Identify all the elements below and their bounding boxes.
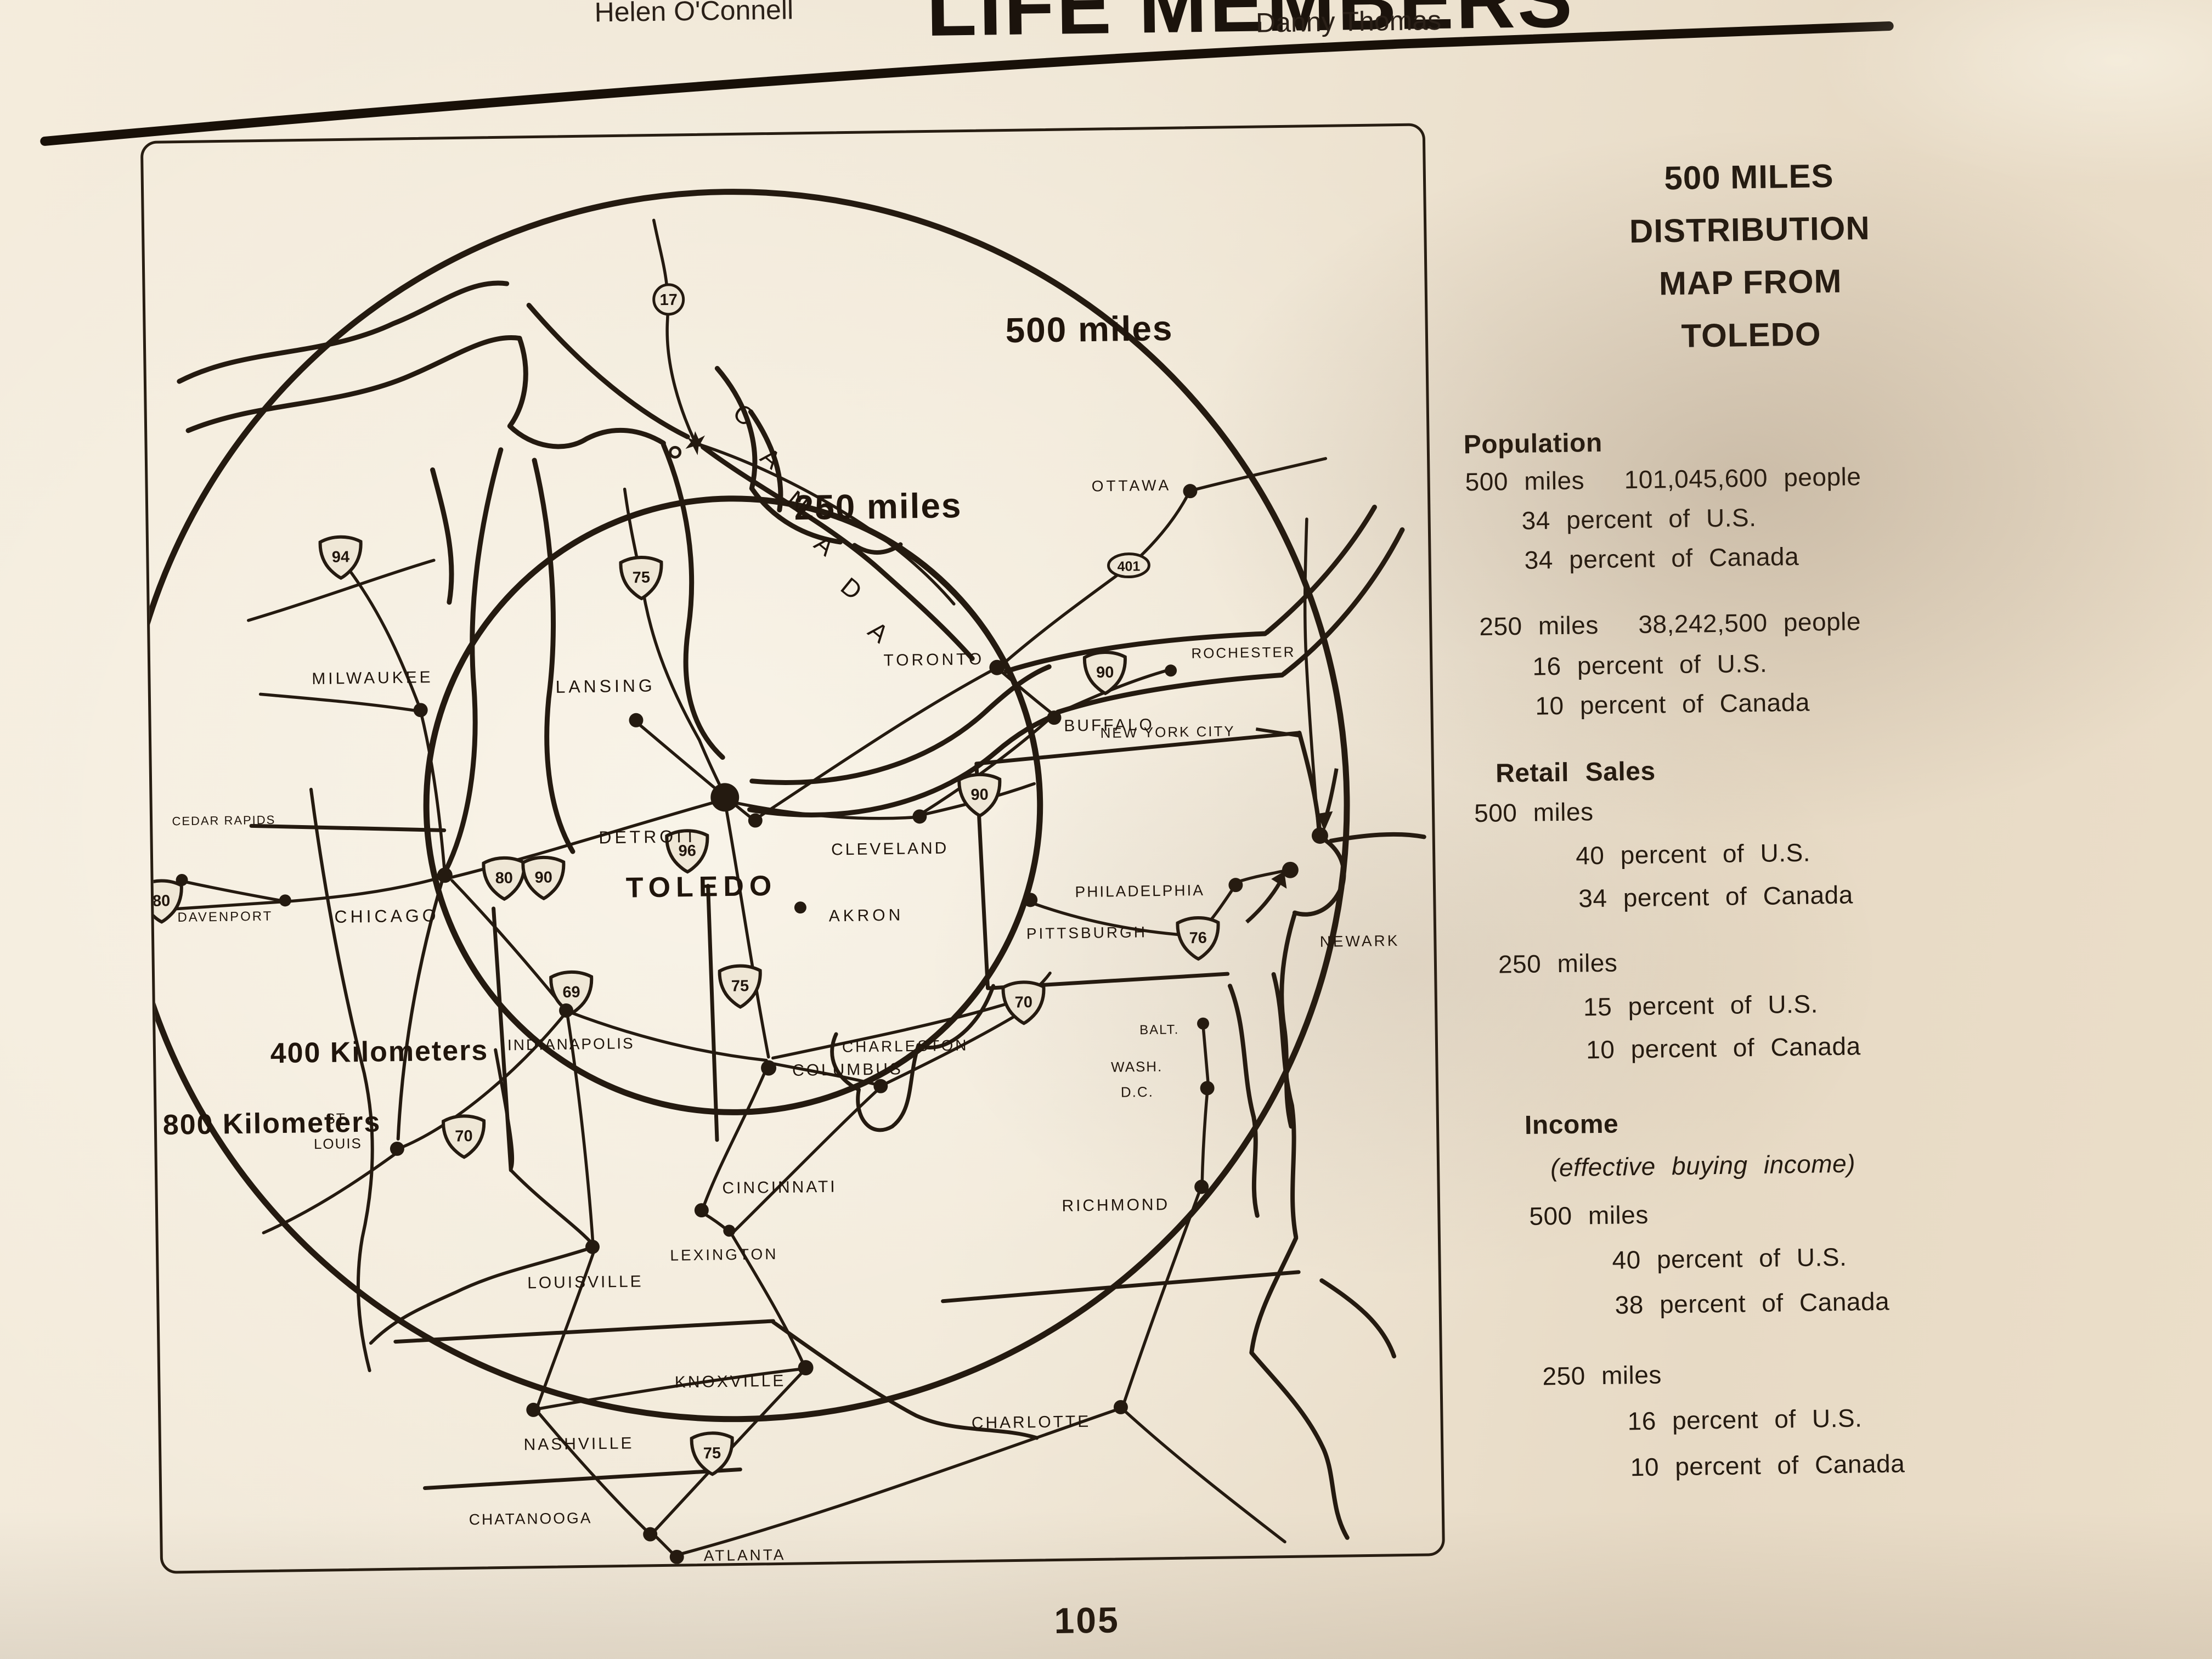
sidebar-title-line-1: 500 MILES (1601, 156, 1898, 198)
shield-number: 70 (1015, 994, 1033, 1011)
sidebar-title-line-2: DISTRIBUTION (1601, 208, 1898, 251)
credit-helen-oconnell: Helen O'Connell (594, 0, 793, 28)
city-label-atlanta: ATLANTA (703, 1546, 786, 1564)
city-label-cedar-rapids: CEDAR RAPIDS (172, 813, 275, 828)
shield-number: 75 (703, 1444, 721, 1462)
city-label-newark: NEWARK (1320, 932, 1400, 950)
highway-shield-75: 75 (620, 557, 662, 599)
population-heading: Population (1463, 428, 1602, 460)
scale-label-800-kilometers: 800 Kilometers (162, 1106, 381, 1141)
lake-michigan (439, 449, 573, 871)
population-500-canada: 34 percent of Canada (1524, 541, 1799, 575)
city-label-toronto: TORONTO (883, 650, 984, 670)
shield-number: 90 (1096, 664, 1114, 681)
city-dot-balt (1197, 1018, 1209, 1030)
city-label-rochester: ROCHESTER (1191, 644, 1295, 662)
credit-danny-thomas: Danny Thomas (1256, 4, 1442, 39)
city-label-ottawa: OTTAWA (1092, 477, 1172, 495)
sidebar-title-line-4: TOLEDO (1603, 314, 1900, 356)
city-label-indianapolis: INDIANAPOLIS (507, 1035, 635, 1053)
shield-number: 94 (332, 548, 350, 566)
retail-500-label: 500 miles (1474, 797, 1594, 828)
sault-junction-circle (670, 447, 680, 457)
country-label-letter: A (755, 442, 787, 475)
scale-label-400-kilometers: 400 Kilometers (270, 1035, 488, 1070)
city-dot-wash-d-c (1200, 1081, 1214, 1095)
city-label-buffalo: BUFFALO (1064, 716, 1154, 735)
income-250-us: 16 percent of U.S. (1627, 1403, 1862, 1436)
city-label-pittsburgh: PITTSBURGH (1026, 923, 1148, 942)
income-250-canada: 10 percent of Canada (1630, 1448, 1905, 1482)
scale-label-500-miles: 500 miles (1005, 308, 1173, 350)
city-label-chatanooga: CHATANOOGA (469, 1509, 592, 1528)
population-250-us: 16 percent of U.S. (1532, 648, 1767, 681)
shield-number: 75 (633, 569, 651, 586)
city-label-wash-d-c: D.C. (1121, 1084, 1154, 1101)
population-250-label: 250 miles (1479, 610, 1599, 641)
book-page: LIFE MEMBERS Helen O'Connell Danny Thoma… (0, 0, 2212, 1659)
highway-shield-70: 70 (1003, 982, 1044, 1024)
city-label-cincinnati: CINCINNATI (722, 1178, 837, 1198)
city-label-columbus: COLUMBUS (792, 1060, 903, 1080)
page-title: LIFE MEMBERS (926, 0, 1575, 55)
page-number: 105 (1054, 1599, 1120, 1641)
city-dot-akron (794, 901, 806, 913)
country-label-letter: A (863, 616, 895, 649)
city-label-charlotte: CHARLOTTE (972, 1413, 1091, 1432)
income-250-label: 250 miles (1542, 1360, 1662, 1391)
income-note: (effective buying income) (1550, 1149, 1856, 1183)
income-heading: Income (1525, 1109, 1619, 1141)
shield-number: 17 (659, 291, 678, 309)
highway-shield-401: 401 (1108, 554, 1149, 577)
distribution-map: 941775968090697590904017670707580 MILWAU… (140, 123, 1445, 1573)
population-250-canada: 10 percent of Canada (1535, 687, 1810, 721)
city-label-davenport: DAVENPORT (177, 909, 273, 925)
shield-number: 80 (153, 892, 171, 910)
lakes-and-shorelines (178, 270, 1407, 875)
shield-number: 401 (1117, 558, 1140, 574)
income-500-canada: 38 percent of Canada (1615, 1286, 1889, 1320)
city-dot-ottawa (1183, 484, 1197, 498)
highway-shield-75: 75 (719, 966, 760, 1007)
highway-shield-94: 94 (320, 537, 361, 578)
income-500-us: 40 percent of U.S. (1612, 1242, 1847, 1275)
city-label-cleveland: CLEVELAND (831, 839, 949, 859)
retail-500-canada: 34 percent of Canada (1578, 880, 1853, 913)
highway-shield-90: 90 (959, 774, 1000, 816)
lake-huron (662, 366, 843, 758)
shield-number: 75 (731, 977, 749, 995)
atlantic-coastline (1227, 731, 1434, 1539)
retail-500-us: 40 percent of U.S. (1576, 838, 1810, 871)
shield-number: 90 (970, 786, 989, 804)
city-label-milwaukee: MILWAUKEE (312, 668, 433, 688)
city-dot-st-louis (390, 1142, 404, 1156)
population-500-value: 101,045,600 people (1624, 461, 1861, 494)
city-label-louisville: LOUISVILLE (527, 1272, 644, 1292)
retail-heading: Retail Sales (1496, 757, 1656, 789)
city-label-lexington: LEXINGTON (670, 1245, 778, 1264)
sidebar-title-line-3: MAP FROM (1602, 261, 1899, 303)
highway-shield-80: 80 (483, 857, 524, 899)
photo-of-book-page: LIFE MEMBERS Helen O'Connell Danny Thoma… (0, 0, 2212, 1659)
city-dot-rochester (1165, 664, 1177, 676)
city-label-lansing: LANSING (555, 675, 656, 697)
city-label-charleston: CHARLESTON (842, 1037, 969, 1056)
city-label-detroit: DETROIT (599, 826, 699, 848)
city-label-wash-d-c: WASH. (1111, 1058, 1163, 1075)
city-dot-chicago (437, 867, 453, 883)
newark-arrow (1246, 882, 1280, 922)
shield-number: 90 (534, 869, 552, 887)
lake-superior (178, 283, 521, 431)
population-500-label: 500 miles (1465, 465, 1584, 496)
country-label-letter: D (836, 572, 868, 606)
city-label-knoxville: KNOXVILLE (675, 1372, 786, 1392)
highway-shield-76: 76 (1177, 918, 1218, 960)
city-label-richmond: RICHMOND (1062, 1195, 1170, 1215)
country-label-letter: C (728, 398, 761, 432)
city-dot-milwaukee (414, 703, 428, 717)
highway-shield-17: 17 (653, 285, 684, 315)
highway-shield-90: 90 (523, 857, 564, 899)
scale-label-250-miles: 250 miles (794, 486, 962, 527)
highway-shield-70: 70 (443, 1116, 484, 1158)
retail-250-canada: 10 percent of Canada (1586, 1031, 1861, 1064)
city-label-chicago: CHICAGO (334, 905, 439, 927)
city-label-akron: AKRON (828, 906, 904, 926)
shield-number: 80 (495, 870, 513, 887)
retail-250-us: 15 percent of U.S. (1583, 989, 1818, 1022)
population-500-us: 34 percent of U.S. (1521, 503, 1756, 535)
city-label-toledo: TOLEDO (626, 870, 777, 904)
city-dot-louisville (585, 1240, 600, 1254)
city-dot-davenport (279, 894, 291, 906)
population-250-value: 38,242,500 people (1638, 606, 1861, 639)
shield-number: 76 (1189, 929, 1207, 947)
shield-number: 70 (455, 1127, 473, 1145)
canada-border-shore (529, 299, 972, 664)
shield-number: 69 (562, 984, 580, 1001)
retail-250-label: 250 miles (1498, 948, 1618, 979)
highway-shield-75: 75 (691, 1433, 732, 1475)
city-label-philadelphia: PHILADELPHIA (1075, 882, 1205, 900)
city-label-balt: BALT. (1139, 1022, 1179, 1037)
city-label-nashville: NASHVILLE (523, 1434, 634, 1454)
income-500-label: 500 miles (1529, 1200, 1649, 1231)
